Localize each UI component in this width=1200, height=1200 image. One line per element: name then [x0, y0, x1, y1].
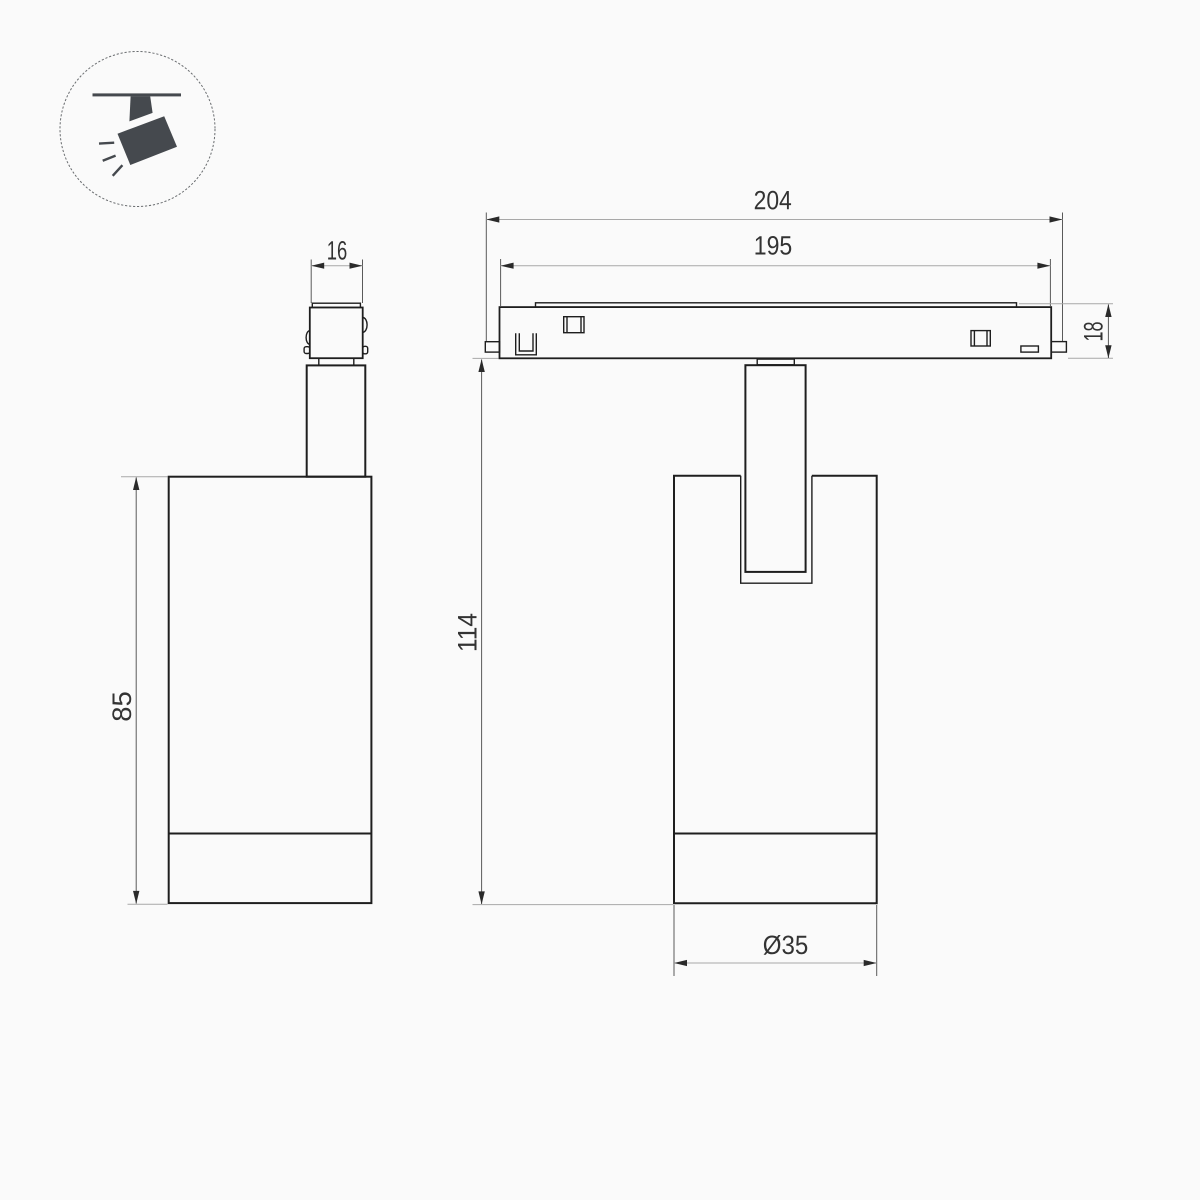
svg-text:204: 204 [754, 185, 792, 215]
svg-text:85: 85 [107, 691, 137, 722]
svg-text:195: 195 [754, 230, 793, 260]
svg-text:Ø35: Ø35 [763, 930, 809, 960]
svg-text:114: 114 [453, 613, 483, 652]
svg-text:16: 16 [327, 235, 348, 265]
svg-text:18: 18 [1079, 322, 1109, 342]
